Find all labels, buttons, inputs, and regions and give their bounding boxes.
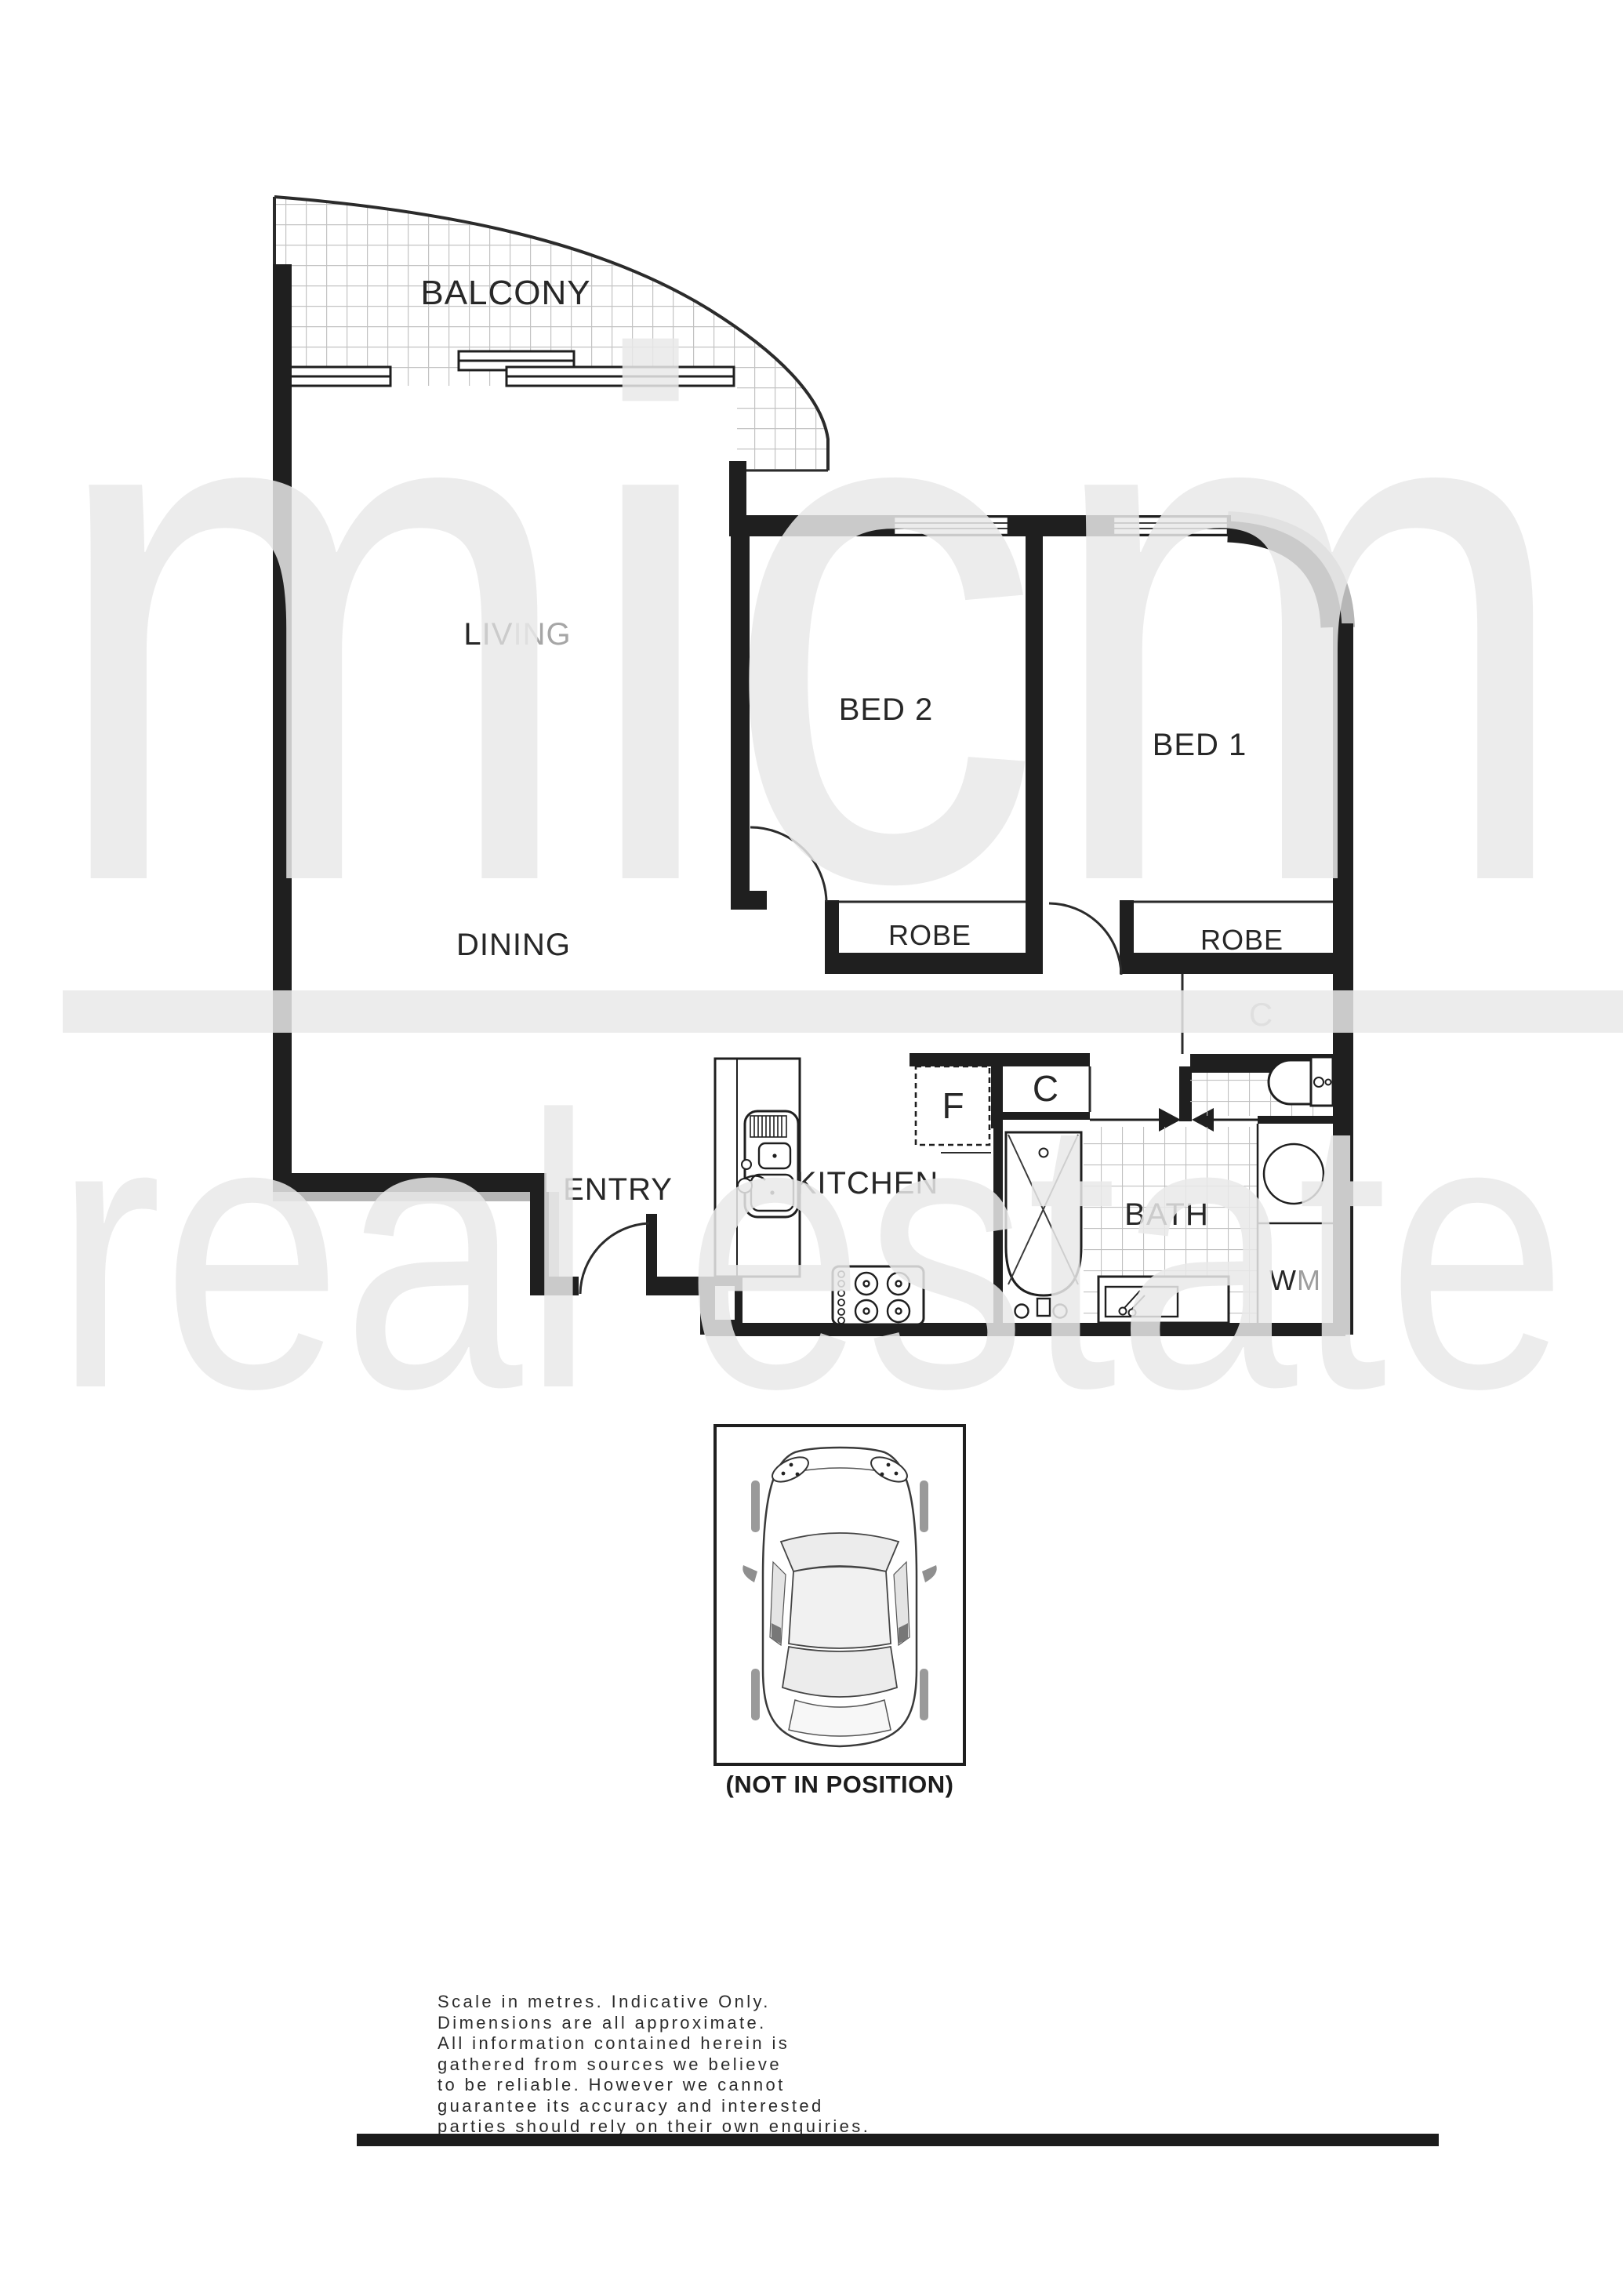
disclaimer-line: gathered from sources we believe — [438, 2054, 870, 2076]
car-top-view — [743, 1448, 936, 1746]
watermark-brand: micm — [46, 205, 1575, 1037]
disclaimer-line: to be reliable. However we cannot — [438, 2075, 870, 2096]
car-windshield — [781, 1533, 899, 1571]
disclaimer-line: All information contained herein is — [438, 2033, 870, 2054]
disclaimer-line: Dimensions are all approximate. — [438, 2013, 870, 2034]
footer-bar — [357, 2134, 1439, 2146]
disclaimer-line: guarantee its accuracy and interested — [438, 2096, 870, 2117]
car-space: (NOT IN POSITION) — [715, 1426, 964, 1798]
watermark-tagline: real estate — [54, 1035, 1567, 1469]
car-roof — [789, 1567, 891, 1648]
car-rear-window — [782, 1647, 897, 1697]
disclaimer-line: Scale in metres. Indicative Only. — [438, 1992, 870, 2013]
car-space-caption: (NOT IN POSITION) — [726, 1771, 954, 1798]
watermark: micm real estate — [46, 205, 1623, 1469]
disclaimer-text: Scale in metres. Indicative Only. Dimens… — [438, 1992, 870, 2138]
floorplan-svg: BALCONY LIVING DINING BED 2 BED 1 ROBE R… — [0, 0, 1623, 2296]
